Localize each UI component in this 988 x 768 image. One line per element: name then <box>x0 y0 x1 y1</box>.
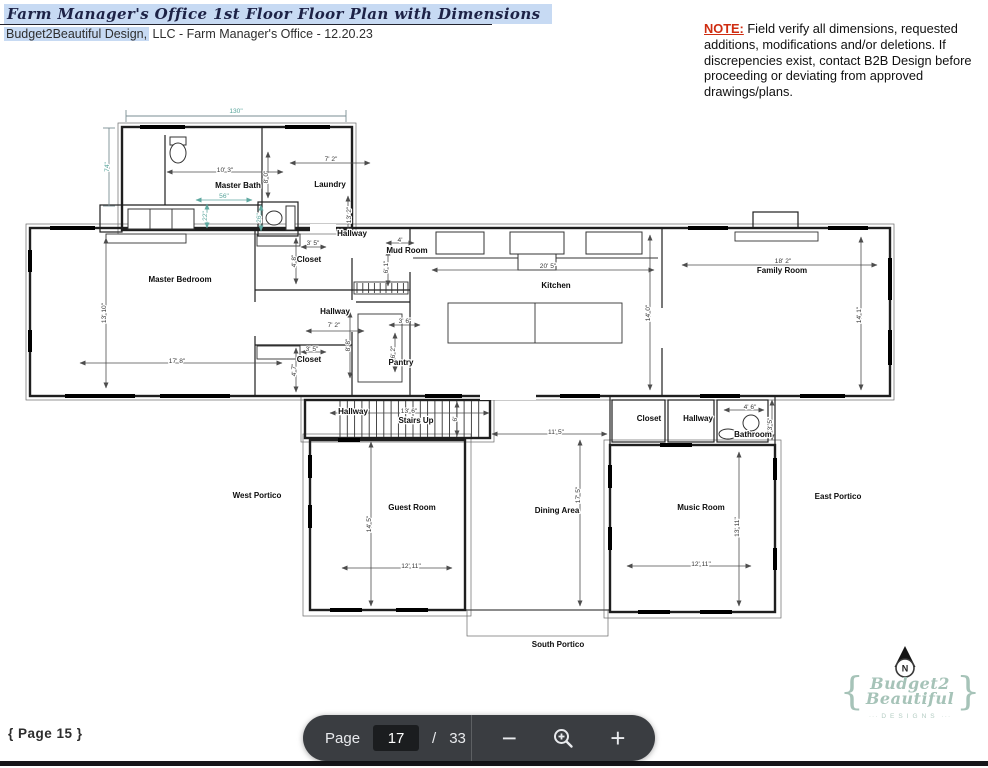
dim-label-4-7: 4' 7" <box>291 363 298 376</box>
dim-label-26: 26" <box>256 213 263 223</box>
room-label-closet: Closet <box>297 255 322 264</box>
page-title: Farm Manager's Office 1st Floor Floor Pl… <box>4 4 552 24</box>
dim-label-3-5: 3' 5" <box>767 417 774 430</box>
logo-brace-right: } <box>956 672 980 710</box>
bottom-black-bar <box>0 761 988 766</box>
room-label-hallway: Hallway <box>683 414 713 423</box>
dimension-lines <box>80 110 877 606</box>
toilet-icon <box>266 211 282 225</box>
zoom-tool-button[interactable] <box>545 720 581 756</box>
zoom-controls: − + <box>472 720 655 756</box>
room-label-south-portico: South Portico <box>532 640 585 649</box>
dim-label-17-5: 17' 5" <box>575 486 582 503</box>
dim-label-11-5: 11' 5" <box>548 429 565 436</box>
pdf-toolbar: Page / 33 − + <box>303 715 655 761</box>
room-label-closet: Closet <box>637 414 662 423</box>
document-subtitle: Budget2Beautiful Design, LLC - Farm Mana… <box>4 27 373 41</box>
room-label-family-room: Family Room <box>757 266 807 275</box>
dim-label-14-1: 14' 1" <box>856 306 863 323</box>
dim-label-14-0: 14' 0" <box>645 304 652 321</box>
room-label-master-bedroom: Master Bedroom <box>148 275 211 284</box>
vanity-icon <box>128 209 194 229</box>
subtitle-rest: LLC - Farm Manager's Office - 12.20.23 <box>149 27 373 41</box>
room-label-master-bath: Master Bath <box>215 181 261 190</box>
room-label-west-portico: West Portico <box>233 491 282 500</box>
dim-label-17-8: 17' 8" <box>169 358 186 365</box>
page-label: Page <box>325 730 360 747</box>
dim-label-6-1: 6' 1" <box>383 260 390 273</box>
dim-label-3-5: 3' 5" <box>307 240 320 247</box>
plan-labels: Master BathLaundryHallwayMud RoomClosetM… <box>101 108 863 649</box>
dim-label-22: 22" <box>202 211 209 221</box>
room-label-stairs-up: Stairs Up <box>398 416 433 425</box>
dim-label-13-11: 13' 11" <box>734 517 741 537</box>
fixtures <box>106 137 818 439</box>
bench-icon <box>354 282 408 294</box>
dim-label-3-6: 3' 6" <box>399 318 412 325</box>
exterior-outline <box>26 123 894 618</box>
zoom-out-button[interactable]: − <box>491 720 527 756</box>
dim-label-13-10: 13' 10" <box>101 302 108 323</box>
room-label-east-portico: East Portico <box>815 492 862 501</box>
logo-wordmark: Budget2Beautiful <box>866 676 954 706</box>
dim-label-4: 4' <box>398 237 403 244</box>
dim-label-6: 6' <box>452 417 459 422</box>
dim-label-130: 130" <box>229 108 243 115</box>
room-label-music-room: Music Room <box>677 503 725 512</box>
logo-brace-left: { <box>840 672 864 710</box>
page-number-input[interactable] <box>373 725 419 751</box>
b2b-logo: { Budget2Beautiful } DESIGNS <box>854 672 966 720</box>
previous-page-link[interactable]: { Page 15 } <box>8 726 83 741</box>
page-separator: / <box>432 730 436 747</box>
dim-label-4-8: 4' 8" <box>291 254 298 267</box>
dim-label-10-3: 10' 3" <box>217 167 234 174</box>
room-label-guest-room: Guest Room <box>388 503 436 512</box>
pdf-viewer-page: Farm Manager's Office 1st Floor Floor Pl… <box>0 0 988 768</box>
room-label-laundry: Laundry <box>314 180 346 189</box>
page-controls: Page / 33 <box>303 725 471 751</box>
floor-plan-drawing: Master BathLaundryHallwayMud RoomClosetM… <box>0 0 988 768</box>
bench-hatch <box>357 283 403 293</box>
window-marks <box>30 127 890 612</box>
dim-label-8-8: 8' 8" <box>345 338 352 351</box>
total-pages: 33 <box>449 730 466 747</box>
dim-label-74: 74" <box>104 162 111 172</box>
logo-designs-label: DESIGNS <box>854 713 966 720</box>
room-label-hallway: Hallway <box>320 307 350 316</box>
room-label-hallway: Hallway <box>337 229 367 238</box>
dim-label-4-6: 4' 6" <box>744 404 757 411</box>
dim-label-13-2: 13' 2" <box>346 206 353 223</box>
dim-label-18-2: 18' 2" <box>775 258 792 265</box>
room-label-hallway: Hallway <box>338 407 368 416</box>
dim-label-6-2: 6' 2" <box>390 345 397 358</box>
dim-label-13-6: 13' 6" <box>401 408 418 415</box>
counter-icon <box>436 232 484 254</box>
dim-label-12-11: 12' 11" <box>401 563 421 570</box>
room-label-dining-area: Dining Area <box>535 506 580 515</box>
magnifier-plus-icon <box>552 727 574 749</box>
sink-icon <box>743 415 759 431</box>
dim-label-7-2: 7' 2" <box>325 156 338 163</box>
dim-label-8-0: 8' 0" <box>263 170 270 183</box>
dim-label-20-5: 20' 5" <box>540 263 557 270</box>
document-header: Farm Manager's Office 1st Floor Floor Pl… <box>4 4 552 24</box>
room-label-mud-room: Mud Room <box>386 246 427 255</box>
dim-label-7-2: 7' 2" <box>328 322 341 329</box>
walls <box>30 127 890 636</box>
zoom-in-button[interactable]: + <box>600 720 636 756</box>
room-label-kitchen: Kitchen <box>541 281 570 290</box>
dim-label-56: 56" <box>219 193 229 200</box>
subtitle-company: Budget2Beautiful Design, <box>4 27 149 41</box>
dim-label-14-5: 14' 5" <box>366 515 373 532</box>
dim-label-12-11: 12' 11" <box>691 561 711 568</box>
dim-label-3-5: 3' 5" <box>306 346 319 353</box>
room-label-closet: Closet <box>297 355 322 364</box>
